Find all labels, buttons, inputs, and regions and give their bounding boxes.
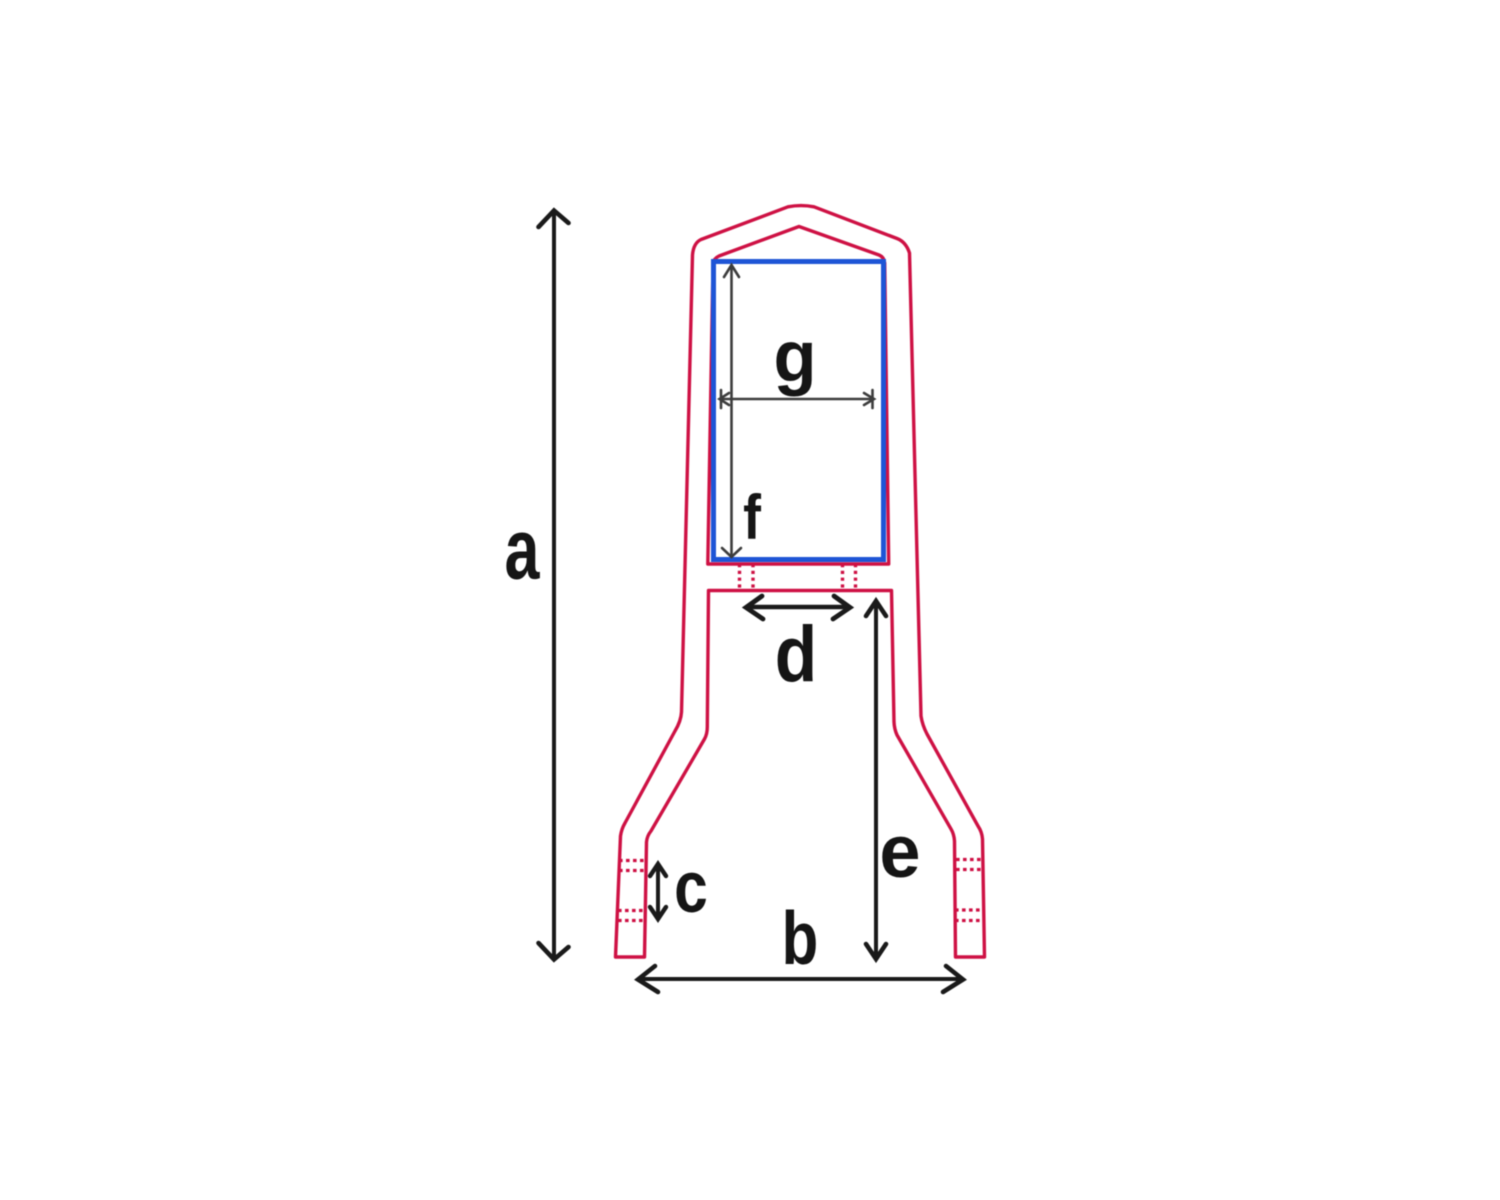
svg-text:a: a	[505, 501, 541, 596]
svg-text:d: d	[775, 610, 817, 698]
svg-text:b: b	[782, 898, 819, 981]
svg-text:c: c	[674, 848, 708, 928]
svg-text:g: g	[773, 316, 816, 397]
svg-text:e: e	[879, 810, 920, 893]
svg-text:f: f	[743, 483, 761, 553]
